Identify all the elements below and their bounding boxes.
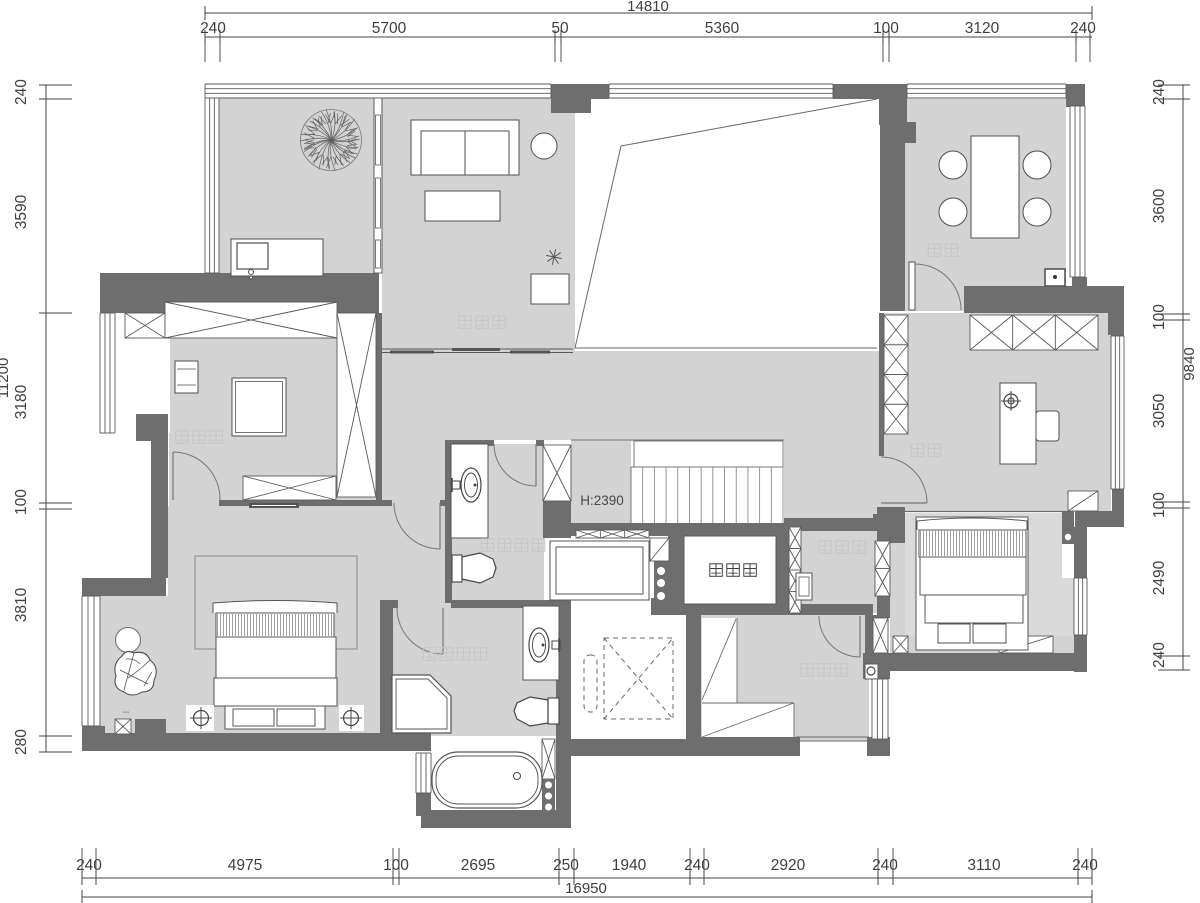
svg-text:100: 100 [873, 20, 899, 37]
svg-text:100: 100 [383, 857, 409, 874]
svg-text:240: 240 [1072, 857, 1098, 874]
svg-text:11200: 11200 [0, 358, 12, 399]
svg-text:5360: 5360 [705, 20, 740, 37]
svg-text:100: 100 [13, 489, 30, 515]
svg-text:3110: 3110 [967, 857, 1001, 874]
svg-text:4975: 4975 [228, 857, 262, 874]
svg-text:▪▪▪: ▪▪▪ [123, 710, 129, 716]
svg-text:240: 240 [1151, 642, 1168, 668]
svg-text:5700: 5700 [372, 20, 407, 37]
svg-text:2695: 2695 [461, 857, 495, 874]
svg-text:14810: 14810 [627, 0, 669, 15]
svg-text:1940: 1940 [612, 857, 647, 874]
svg-text:3120: 3120 [965, 20, 1000, 37]
svg-text:50: 50 [551, 20, 569, 37]
svg-text:2920: 2920 [771, 857, 806, 874]
svg-text:3810: 3810 [13, 587, 30, 622]
svg-text:3590: 3590 [13, 194, 30, 229]
svg-text:240: 240 [872, 857, 898, 874]
svg-text:250: 250 [553, 857, 579, 874]
svg-text:240: 240 [76, 857, 102, 874]
svg-text:3600: 3600 [1151, 188, 1168, 223]
svg-text:240: 240 [1070, 20, 1096, 37]
svg-text:3050: 3050 [1151, 393, 1168, 428]
svg-text:240: 240 [1151, 79, 1168, 105]
svg-text:240: 240 [200, 20, 226, 37]
svg-text:9840: 9840 [1181, 347, 1198, 380]
svg-text:100: 100 [1151, 492, 1168, 518]
svg-text:16950: 16950 [565, 880, 607, 897]
svg-text:100: 100 [1151, 304, 1168, 330]
svg-text:2490: 2490 [1151, 560, 1168, 595]
svg-text:3180: 3180 [13, 384, 30, 419]
svg-text:240: 240 [684, 857, 710, 874]
svg-text:H:2390: H:2390 [580, 493, 624, 508]
svg-text:240: 240 [13, 79, 30, 105]
svg-text:280: 280 [13, 729, 30, 755]
